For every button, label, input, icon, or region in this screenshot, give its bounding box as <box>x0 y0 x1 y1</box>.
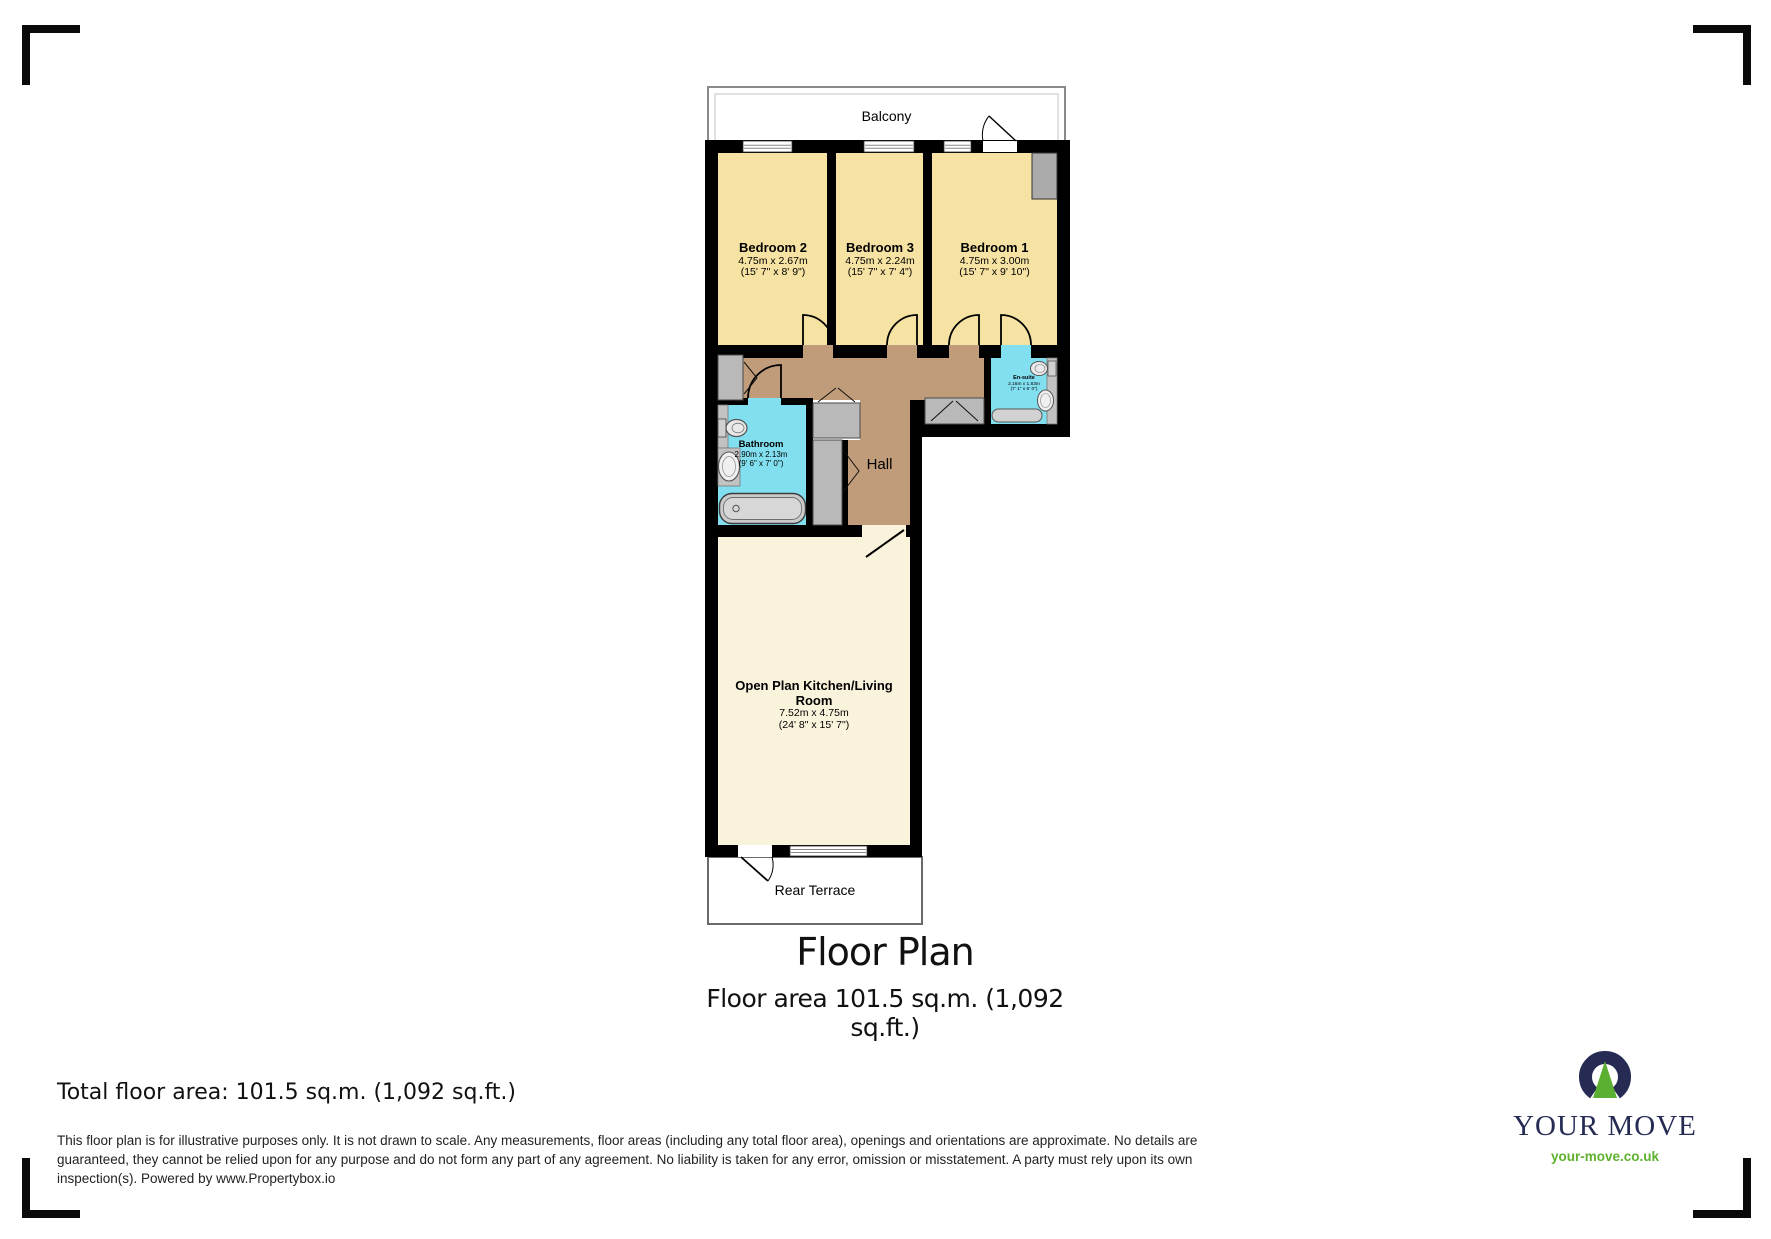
room-name: Bedroom 3 <box>836 241 924 256</box>
toilet-icon <box>718 419 747 437</box>
sink-icon <box>1038 390 1054 411</box>
brand-name: YOUR MOVE <box>1510 1110 1700 1143</box>
rear-terrace-label: Rear Terrace <box>708 883 922 899</box>
room-name: Open Plan Kitchen/Living Room <box>718 679 910 708</box>
disclaimer-line2: guaranteed, they cannot be relied upon f… <box>57 1150 1457 1169</box>
floorplan-graphic <box>0 0 1771 1239</box>
room-dims-imperial: (24' 8" x 15' 7") <box>718 720 910 732</box>
bedroom1-label: Bedroom 1 4.75m x 3.00m (15' 7" x 9' 10"… <box>932 241 1057 279</box>
living-room-label: Open Plan Kitchen/Living Room 7.52m x 4.… <box>718 679 910 732</box>
disclaimer-text: This floor plan is for illustrative purp… <box>57 1131 1457 1188</box>
closet-hall-e <box>925 398 984 424</box>
disclaimer-line1: This floor plan is for illustrative purp… <box>57 1131 1457 1150</box>
bedroom3-label: Bedroom 3 4.75m x 2.24m (15' 7" x 7' 4") <box>836 241 924 279</box>
hall-label: Hall <box>848 457 911 474</box>
your-move-branding: YOUR MOVE your-move.co.uk <box>1510 1048 1700 1164</box>
room-name: Bedroom 1 <box>932 241 1057 256</box>
room-dims-imperial: (15' 7" x 9' 10") <box>932 267 1057 279</box>
bedroom2-label: Bedroom 2 4.75m x 2.67m (15' 7" x 8' 9") <box>718 241 828 279</box>
living-window <box>790 846 867 856</box>
your-move-logo-icon <box>1576 1048 1634 1106</box>
closet-hall-b <box>813 440 842 525</box>
room-dims-imperial: (9' 6" x 7' 0") <box>716 460 806 469</box>
shower-tray-icon <box>992 409 1042 422</box>
total-floor-area: Total floor area: 101.5 sq.m. (1,092 sq.… <box>57 1080 516 1105</box>
room-dims-imperial: (15' 7" x 7' 4") <box>836 267 924 279</box>
disclaimer-line3: inspection(s). Powered by www.Propertybo… <box>57 1169 1457 1188</box>
room-dims-imperial: (7' 1" x 6' 0") <box>991 387 1057 393</box>
bathroom-label: Bathroom 2.90m x 2.13m (9' 6" x 7' 0") <box>716 440 806 469</box>
closet-hall-left <box>718 355 743 400</box>
ensuite-label: En-suite 2.16m x 1.83m (7' 1" x 6' 0") <box>991 375 1057 393</box>
toilet-icon <box>1031 361 1057 376</box>
balcony-door-opening <box>983 141 1017 152</box>
room-name: En-suite <box>991 375 1057 382</box>
bathtub-icon <box>720 494 806 524</box>
closet-hall-a <box>813 403 860 438</box>
room-dims-imperial: (15' 7" x 8' 9") <box>718 267 828 279</box>
bedroom3-window <box>864 141 914 152</box>
page-title: Floor Plan <box>565 930 1205 976</box>
room-name: Bedroom 2 <box>718 241 828 256</box>
bedroom1-window <box>944 141 971 152</box>
bedroom2-window <box>743 141 792 152</box>
floorplan-page: Balcony Bedroom 2 4.75m x 2.67m (15' 7" … <box>0 0 1771 1239</box>
wardrobe-icon <box>1032 153 1057 199</box>
caption-block: Floor Plan Floor area 101.5 sq.m. (1,092… <box>565 930 1205 1042</box>
floor-area-line2: sq.ft.) <box>565 1013 1205 1042</box>
floor-area-subtitle: Floor area 101.5 sq.m. (1,092 sq.ft.) <box>565 984 1205 1042</box>
brand-url: your-move.co.uk <box>1510 1149 1700 1164</box>
balcony-label: Balcony <box>708 109 1065 125</box>
floor-area-line1: Floor area 101.5 sq.m. (1,092 <box>565 984 1205 1013</box>
